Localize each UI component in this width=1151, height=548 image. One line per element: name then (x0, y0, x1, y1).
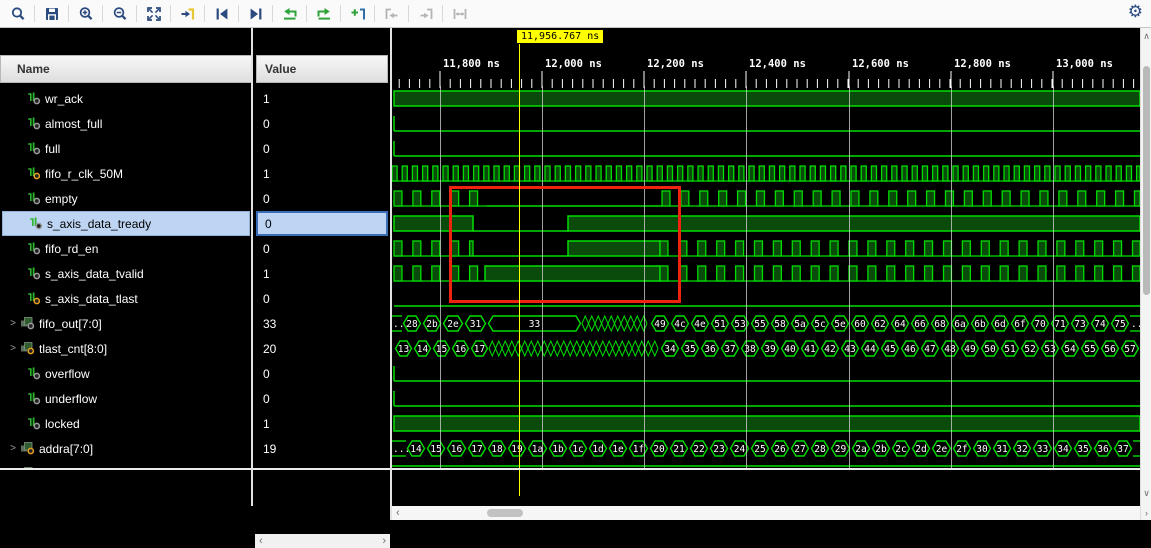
expand-chevron-icon[interactable]: > (6, 318, 20, 329)
scroll-down-icon[interactable]: ∨ (1141, 488, 1151, 499)
bit-signal-icon (26, 265, 41, 283)
svg-text:35: 35 (1077, 444, 1088, 455)
bit-signal-icon (26, 90, 41, 108)
signal-name-cell[interactable]: full (0, 136, 252, 161)
bit-signal-icon (26, 190, 41, 208)
signal-name-label: wr_ack (45, 92, 83, 106)
svg-text:34: 34 (1057, 444, 1069, 455)
toolbar-separator (442, 5, 443, 22)
svg-text:28: 28 (406, 319, 418, 330)
svg-text:2b: 2b (426, 319, 438, 330)
signal-name-label: empty (45, 192, 78, 206)
signal-name-cell[interactable]: overflow (0, 361, 252, 386)
signal-row-empty[interactable]: empty0 (0, 186, 390, 211)
svg-text:37: 37 (724, 344, 735, 355)
signal-value-cell[interactable]: 0 (256, 186, 388, 211)
signal-value-cell[interactable]: 20 (256, 336, 388, 361)
signal-name-label: s_axis_data_tvalid (45, 267, 144, 281)
svg-text:12,400 ns: 12,400 ns (749, 58, 806, 70)
signal-value-cell[interactable]: 33 (256, 311, 388, 336)
signal-row-fifo_out-7-0-[interactable]: >fifo_out[7:0]33 (0, 311, 390, 336)
bus-signal-icon (20, 440, 35, 458)
signal-row-almost_full[interactable]: almost_full0 (0, 111, 390, 136)
svg-text:5c: 5c (814, 319, 825, 330)
svg-text:36: 36 (704, 344, 716, 355)
svg-text:32: 32 (1016, 444, 1027, 455)
svg-text:34: 34 (664, 344, 676, 355)
toolbar-previous-edge-icon[interactable] (276, 2, 303, 26)
signal-value-cell[interactable]: 0 (256, 111, 388, 136)
svg-text:12,000 ns: 12,000 ns (545, 58, 602, 70)
svg-text:41: 41 (804, 344, 816, 355)
svg-text:14: 14 (417, 344, 429, 355)
toolbar-previous-transition-icon[interactable] (208, 2, 235, 26)
signal-value-cell[interactable]: 0 (256, 361, 388, 386)
signal-name-label: overflow (45, 367, 90, 381)
signal-row-locked[interactable]: locked1 (0, 411, 390, 436)
signal-value-cell[interactable]: 0 (256, 386, 388, 411)
bit-signal-icon (26, 140, 41, 158)
svg-text:31: 31 (470, 319, 482, 330)
signal-name-label: s_axis_data_tlast (45, 292, 138, 306)
signal-value-cell[interactable]: … (256, 461, 388, 468)
toolbar-separator (238, 5, 239, 22)
svg-text:6b: 6b (974, 319, 986, 330)
time-cursor-label[interactable]: 11,956.767 ns (517, 30, 603, 43)
signal-value-cell[interactable]: 0 (256, 136, 388, 161)
svg-text:5a: 5a (794, 319, 805, 330)
svg-text:58: 58 (774, 319, 786, 330)
svg-text:75: 75 (1114, 319, 1125, 330)
svg-text:2c: 2c (895, 444, 906, 455)
svg-text:49: 49 (654, 319, 666, 330)
signal-value-label: 1 (263, 167, 270, 181)
horizontal-scroll-thumb[interactable] (487, 509, 523, 517)
signal-value-cell[interactable]: 1 (256, 86, 388, 111)
signal-name-label: fifo_r_clk_50M (45, 167, 123, 181)
svg-text:1f: 1f (633, 444, 644, 455)
svg-text:14: 14 (410, 444, 422, 455)
svg-text:16: 16 (455, 344, 467, 355)
bus-signal-icon (20, 315, 35, 333)
signal-value-label: 20 (263, 342, 276, 356)
signal-name-label: fifo_out[7:0] (39, 317, 102, 331)
scroll-left-icon[interactable]: ‹ (396, 506, 400, 520)
vertical-scrollbar[interactable]: ∧ ∨ › (1140, 28, 1151, 520)
svg-text:6d: 6d (994, 319, 1005, 330)
signal-row-underflow[interactable]: underflow0 (0, 386, 390, 411)
signal-value-label: 19 (263, 442, 276, 456)
signal-row-fifo_rd_en[interactable]: fifo_rd_en0 (0, 236, 390, 261)
bit-signal-icon (26, 165, 41, 183)
toolbar-add-marker-icon[interactable] (344, 2, 371, 26)
svg-text:12,200 ns: 12,200 ns (647, 58, 704, 70)
signal-name-cell[interactable]: s_axis_data_tvalid (0, 261, 252, 286)
svg-text:20: 20 (653, 444, 665, 455)
svg-text:2f: 2f (956, 444, 967, 455)
svg-text:2d: 2d (915, 444, 926, 455)
bottom-separator (0, 468, 1140, 470)
svg-text:24: 24 (734, 444, 746, 455)
signal-row-s_axis_data_tvalid[interactable]: s_axis_data_tvalid1 (0, 261, 390, 286)
wave-row-fifo_r_clk_50M[interactable] (392, 161, 1140, 186)
signal-value-label: 0 (263, 192, 270, 206)
settings-gear-icon[interactable]: ⚙ (1128, 2, 1143, 22)
scroll-up-icon[interactable]: ∧ (1141, 31, 1151, 42)
bit-signal-icon (26, 415, 41, 433)
waveform-viewer-window: { "toolbar": { "icons": ["search","save"… (0, 0, 1151, 520)
svg-text:53: 53 (734, 319, 745, 330)
time-gridline (849, 86, 850, 468)
svg-text:...: ... (1131, 319, 1140, 330)
toolbar-separator (170, 5, 171, 22)
toolbar-separator (204, 5, 205, 22)
value-column-header[interactable]: Value (256, 55, 388, 83)
svg-text:54: 54 (1064, 344, 1076, 355)
signal-value-label: 0 (263, 292, 270, 306)
svg-text:62: 62 (874, 319, 885, 330)
svg-text:36: 36 (1097, 444, 1109, 455)
time-cursor-line[interactable] (519, 44, 520, 496)
vertical-scroll-thumb[interactable] (1143, 66, 1150, 295)
toolbar-go-to-time-cursor-icon[interactable] (174, 2, 201, 26)
svg-text:23: 23 (713, 444, 724, 455)
svg-text:55: 55 (1084, 344, 1095, 355)
signal-name-label: fifo_rd_en (45, 242, 98, 256)
signal-name-label: s_axis_data_tready (47, 217, 151, 231)
toolbar-zoom-in-icon[interactable] (72, 2, 99, 26)
signal-value-label: 0 (263, 392, 270, 406)
signal-name-label: almost_full (45, 117, 102, 131)
svg-text:50: 50 (984, 344, 996, 355)
toolbar-save-icon[interactable] (38, 2, 65, 26)
svg-text:29: 29 (835, 444, 847, 455)
svg-text:52: 52 (1024, 344, 1035, 355)
signal-name-cell[interactable]: >fifo_out[7:0] (0, 311, 252, 336)
panel-divider[interactable] (390, 28, 392, 520)
svg-text:53: 53 (1044, 344, 1055, 355)
signal-name-cell[interactable]: fifo_r_clk_50M (0, 161, 252, 186)
svg-text:45: 45 (884, 344, 895, 355)
name-column-header[interactable]: Name (0, 55, 252, 83)
signal-row-fifo_r_clk_50M[interactable]: fifo_r_clk_50M1 (0, 161, 390, 186)
signal-name-cell[interactable]: locked (0, 411, 252, 436)
svg-text:5e: 5e (834, 319, 846, 330)
toolbar-separator (408, 5, 409, 22)
signal-name-cell[interactable]: underflow (0, 386, 252, 411)
bit-signal-icon (28, 215, 43, 233)
waveform-panel[interactable]: 11,800 ns12,000 ns12,200 ns12,400 ns12,6… (392, 28, 1140, 520)
svg-text:26: 26 (774, 444, 786, 455)
signal-row-wr_ack[interactable]: wr_ack1 (0, 86, 390, 111)
svg-text:6f: 6f (1014, 319, 1025, 330)
toolbar-separator (68, 5, 69, 22)
signal-row-s_axis_data_tlast[interactable]: s_axis_data_tlast0 (0, 286, 390, 311)
svg-text:66: 66 (914, 319, 926, 330)
signal-name-cell[interactable]: >addra[7:0] (0, 436, 252, 461)
svg-text:17: 17 (474, 344, 485, 355)
signal-value-label: 0 (263, 242, 270, 256)
wave-row-full[interactable] (392, 136, 1140, 161)
time-ruler[interactable]: 11,800 ns12,000 ns12,200 ns12,400 ns12,6… (392, 28, 1140, 88)
wave-row-almost_full[interactable] (392, 111, 1140, 136)
signal-rows: wr_ack1almost_full0full0fifo_r_clk_50M1e… (0, 86, 390, 468)
toolbar-separator (340, 5, 341, 22)
toolbar-separator (102, 5, 103, 22)
svg-text:22: 22 (693, 444, 704, 455)
signal-name-cell[interactable]: s_axis_data_tready (2, 211, 250, 236)
signal-list-panel: Name Value wr_ack1almost_full0full0fifo_… (0, 28, 390, 520)
scroll-right-icon[interactable]: › (382, 534, 386, 548)
bus-signal-icon (20, 340, 35, 358)
svg-text:1c: 1c (572, 444, 583, 455)
time-gridline (1053, 86, 1054, 468)
signal-name-cell[interactable]: s_axis_data_tlast (0, 286, 252, 311)
svg-text:18: 18 (491, 444, 503, 455)
signal-value-cell[interactable]: 1 (256, 261, 388, 286)
svg-text:33: 33 (1037, 444, 1048, 455)
wave-row--[interactable] (392, 461, 1140, 468)
bit-signal-icon (26, 240, 41, 258)
expand-chevron-icon[interactable]: > (6, 343, 20, 354)
svg-text:37: 37 (1117, 444, 1128, 455)
svg-text:1d: 1d (592, 444, 603, 455)
svg-text:60: 60 (854, 319, 866, 330)
scroll-left-icon[interactable]: ‹ (259, 534, 263, 548)
toolbar-jump-to-right-disabled-icon (412, 2, 439, 26)
svg-text:15: 15 (436, 344, 447, 355)
svg-text:46: 46 (904, 344, 916, 355)
toolbar-zoom-fit-icon[interactable] (140, 2, 167, 26)
signal-name-label: underflow (45, 392, 97, 406)
svg-text:74: 74 (1094, 319, 1106, 330)
toolbar-next-transition-icon[interactable] (242, 2, 269, 26)
svg-text:40: 40 (784, 344, 796, 355)
signal-row--[interactable]: >…… (0, 461, 390, 468)
signal-value-label: 1 (263, 267, 270, 281)
svg-text:51: 51 (1004, 344, 1016, 355)
signal-row-full[interactable]: full0 (0, 136, 390, 161)
wave-row-addra-7-0-[interactable]: ...1415161718191a1b1c1d1e1f2021222324252… (392, 436, 1140, 461)
signal-value-cell[interactable]: 0 (256, 286, 388, 311)
column-divider[interactable] (251, 28, 253, 506)
svg-text:28: 28 (814, 444, 826, 455)
toolbar-span-markers-disabled-icon (446, 2, 473, 26)
svg-text:44: 44 (864, 344, 876, 355)
svg-text:6a: 6a (954, 319, 965, 330)
toolbar-separator (374, 5, 375, 22)
scroll-right-corner-icon[interactable]: › (1141, 508, 1151, 518)
signal-value-cell[interactable]: 0 (256, 211, 388, 236)
signal-value-cell[interactable]: 1 (256, 411, 388, 436)
signal-value-cell[interactable]: 1 (256, 161, 388, 186)
signal-name-cell[interactable]: almost_full (0, 111, 252, 136)
svg-text:2e: 2e (447, 319, 459, 330)
time-gridline (746, 86, 747, 468)
svg-text:49: 49 (964, 344, 976, 355)
svg-text:55: 55 (754, 319, 765, 330)
signal-name-cell[interactable]: >… (0, 461, 252, 468)
svg-text:43: 43 (844, 344, 855, 355)
toolbar-zoom-out-icon[interactable] (106, 2, 133, 26)
svg-text:1b: 1b (552, 444, 564, 455)
signal-row-overflow[interactable]: overflow0 (0, 361, 390, 386)
svg-text:57: 57 (1124, 344, 1135, 355)
svg-text:30: 30 (976, 444, 988, 455)
wave-row-wr_ack[interactable] (392, 86, 1140, 111)
svg-text:19: 19 (511, 444, 523, 455)
signal-row-addra-7-0-[interactable]: >addra[7:0]19 (0, 436, 390, 461)
bit-signal-icon (26, 115, 41, 133)
toolbar-search-icon[interactable] (4, 2, 31, 26)
svg-text:33: 33 (529, 319, 540, 330)
svg-text:21: 21 (673, 444, 685, 455)
svg-text:17: 17 (471, 444, 482, 455)
signal-value-label: 33 (263, 317, 276, 331)
svg-text:2b: 2b (875, 444, 887, 455)
signal-value-cell[interactable]: 0 (256, 236, 388, 261)
svg-text:25: 25 (754, 444, 765, 455)
svg-text:4e: 4e (694, 319, 706, 330)
svg-text:70: 70 (1034, 319, 1046, 330)
left-horizontal-scrollbar[interactable]: ‹ › (255, 534, 390, 548)
svg-text:13,000 ns: 13,000 ns (1056, 58, 1113, 70)
svg-text:31: 31 (996, 444, 1008, 455)
svg-text:68: 68 (934, 319, 946, 330)
time-gridline (440, 86, 441, 468)
svg-text:35: 35 (684, 344, 695, 355)
red-annotation-box (449, 186, 681, 303)
svg-text:47: 47 (924, 344, 935, 355)
signal-value-label: 0 (263, 117, 270, 131)
svg-text:13: 13 (398, 344, 409, 355)
svg-text:64: 64 (894, 319, 906, 330)
svg-text:11,800 ns: 11,800 ns (443, 58, 500, 70)
signal-name-label: full (45, 142, 60, 156)
svg-text:12,600 ns: 12,600 ns (852, 58, 909, 70)
svg-text:2a: 2a (855, 444, 866, 455)
toolbar-separator (34, 5, 35, 22)
signal-name-cell[interactable]: empty (0, 186, 252, 211)
toolbar-separator (136, 5, 137, 22)
toolbar-jump-to-left-disabled-icon (378, 2, 405, 26)
bit-signal-icon (26, 390, 41, 408)
signal-name-label: locked (45, 417, 80, 431)
signal-row-tlast_cnt-8-0-[interactable]: >tlast_cnt[8:0]20 (0, 336, 390, 361)
signal-name-label: tlast_cnt[8:0] (39, 342, 107, 356)
signal-value-label: 0 (263, 367, 270, 381)
bit-signal-icon (26, 365, 41, 383)
toolbar-separator (306, 5, 307, 22)
signal-value-cell[interactable]: 19 (256, 436, 388, 461)
signal-value-label: 0 (265, 217, 272, 231)
svg-text:27: 27 (794, 444, 805, 455)
signal-value-label: 1 (263, 417, 270, 431)
signal-name-cell[interactable]: wr_ack (0, 86, 252, 111)
wave-row-tlast_cnt-8-0-[interactable]: 1314151617343536373839404142434445464748… (392, 336, 1140, 361)
svg-text:51: 51 (714, 319, 726, 330)
svg-text:39: 39 (764, 344, 776, 355)
svg-text:4c: 4c (674, 319, 685, 330)
signal-value-label: 0 (263, 142, 270, 156)
wave-row-underflow[interactable] (392, 386, 1140, 411)
signal-row-s_axis_data_tready[interactable]: s_axis_data_tready0 (0, 211, 390, 236)
svg-text:16: 16 (451, 444, 463, 455)
toolbar-next-edge-icon[interactable] (310, 2, 337, 26)
signal-value-label: 1 (263, 92, 270, 106)
wave-row-overflow[interactable] (392, 361, 1140, 386)
wave-row-fifo_out-7-0-[interactable]: ...282b2e3133494c4e515355585a5c5e6062646… (392, 311, 1140, 336)
svg-text:2e: 2e (936, 444, 948, 455)
bit-signal-icon (26, 290, 41, 308)
toolbar-separator (272, 5, 273, 22)
svg-text:1e: 1e (612, 444, 624, 455)
svg-text:73: 73 (1074, 319, 1085, 330)
time-gridline (951, 86, 952, 468)
svg-text:56: 56 (1104, 344, 1116, 355)
wave-row-locked[interactable] (392, 411, 1140, 436)
expand-chevron-icon[interactable]: > (6, 443, 20, 454)
svg-text:12,800 ns: 12,800 ns (954, 58, 1011, 70)
svg-text:71: 71 (1054, 319, 1066, 330)
signal-name-cell[interactable]: >tlast_cnt[8:0] (0, 336, 252, 361)
signal-name-label: addra[7:0] (39, 442, 93, 456)
toolbar: ⚙ (0, 0, 1151, 28)
waveform-horizontal-scrollbar[interactable]: ‹ (392, 506, 1140, 520)
signal-name-cell[interactable]: fifo_rd_en (0, 236, 252, 261)
svg-text:42: 42 (824, 344, 835, 355)
